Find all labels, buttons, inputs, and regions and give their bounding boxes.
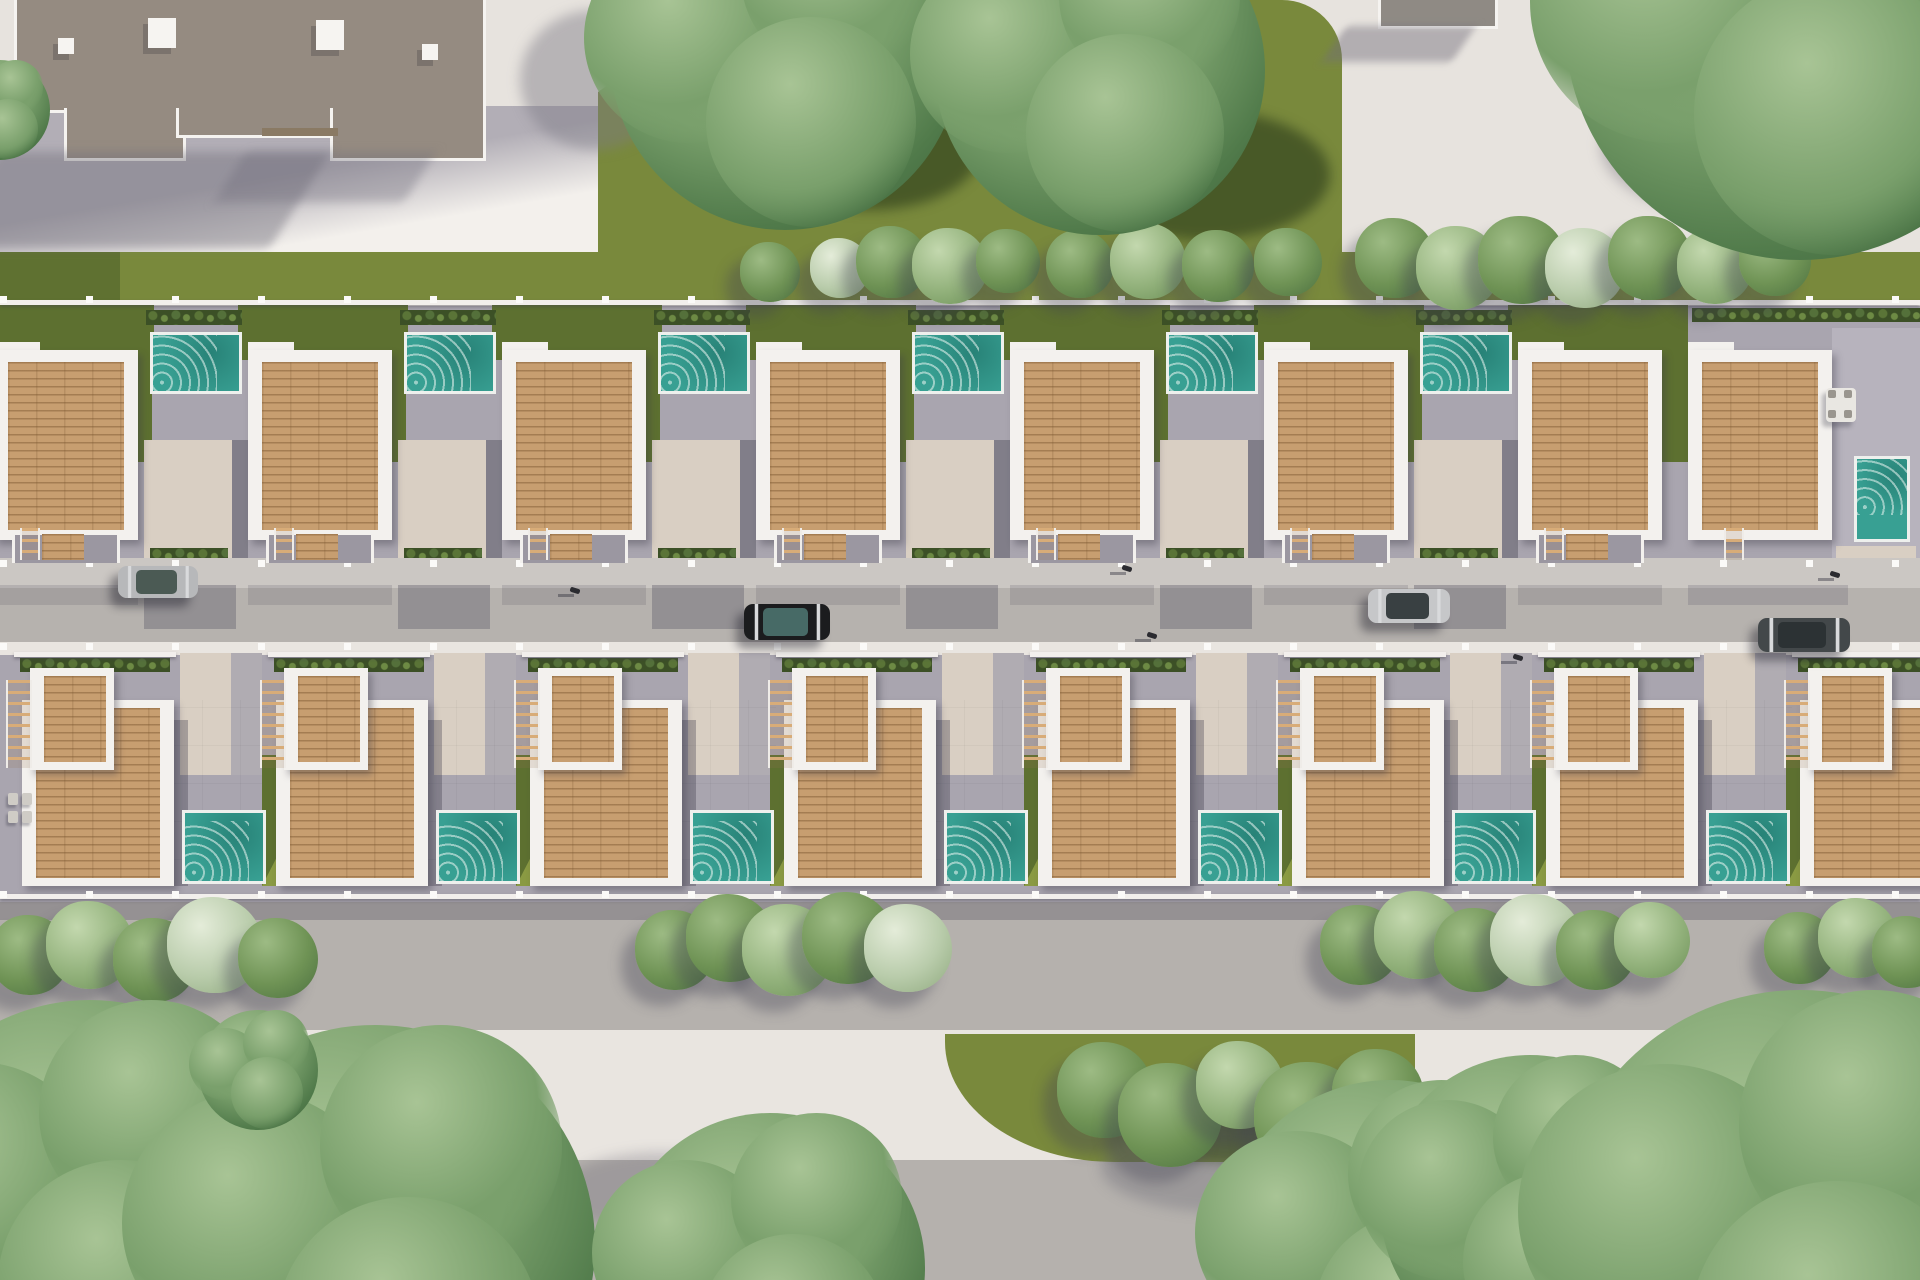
l-corner-chair bbox=[22, 793, 32, 805]
central-street bbox=[0, 558, 1920, 655]
l-lot-7-stairs bbox=[1784, 680, 1810, 768]
u-lot-2-stairs bbox=[528, 528, 548, 560]
l-lot-1-entry-deck-wood bbox=[298, 676, 360, 762]
building-cast-shadow-2 bbox=[214, 152, 435, 202]
bottom-tree-2 bbox=[198, 1010, 318, 1130]
u-lot-1-stairs bbox=[274, 528, 294, 560]
u-lot-0-deck-wood bbox=[8, 362, 124, 530]
small-building-shadow bbox=[1322, 26, 1476, 62]
tree-canopy-lobe bbox=[231, 1057, 303, 1129]
top-strip-bush-5 bbox=[1046, 230, 1114, 298]
l-lot-6-entry-deck bbox=[1554, 668, 1638, 770]
u-lot-5-hedge bbox=[1162, 310, 1258, 325]
pedestrian-2-shadow bbox=[1135, 639, 1151, 642]
tree-canopy-lobe bbox=[706, 17, 916, 227]
road-shadow-deck-6 bbox=[1518, 585, 1662, 605]
u-lot-4-walkway bbox=[906, 440, 994, 560]
l-lot-3-entry-deck-wood bbox=[806, 676, 868, 762]
u-lot-5-pool bbox=[1166, 332, 1258, 394]
u-lot-4-front-deck bbox=[1058, 534, 1100, 560]
u-lot-3-pool bbox=[658, 332, 750, 394]
tree-canopy-lobe bbox=[1694, 0, 1920, 255]
u-lot-3-walkway bbox=[652, 440, 740, 560]
l-corner-chair bbox=[8, 811, 18, 823]
u-lot-6-walkway bbox=[1414, 440, 1502, 560]
u-lot-0-front-deck bbox=[42, 534, 84, 560]
u-lot-1-walkway bbox=[144, 440, 232, 560]
u-lot-6-deck bbox=[1518, 350, 1662, 540]
u-end-table bbox=[1826, 388, 1856, 422]
l-lot-0-entry-deck-wood bbox=[44, 676, 106, 762]
road-shadow-walk-2 bbox=[398, 585, 490, 629]
l-lot-3-pool bbox=[944, 810, 1028, 884]
u-lot-5-deck-wood bbox=[1278, 362, 1394, 530]
pedestrian-3-shadow bbox=[1818, 578, 1834, 581]
l-lot-2-stairs bbox=[514, 680, 540, 768]
u-lot-3-walkway-shadow bbox=[740, 440, 756, 560]
u-lot-5-front-deck bbox=[1312, 534, 1354, 560]
l-lot-5-entry-deck bbox=[1300, 668, 1384, 770]
l-lot-0-pool bbox=[182, 810, 266, 884]
l-lot-7-front-wall bbox=[1792, 652, 1920, 657]
u-lot-2-pool bbox=[404, 332, 496, 394]
pedestrian-1-shadow bbox=[1110, 572, 1126, 575]
u-lot-3-hedge bbox=[654, 310, 750, 325]
silver-car-left bbox=[118, 566, 198, 598]
l-lot-7-entry-deck-wood bbox=[1822, 676, 1884, 762]
u-lot-6-hedge bbox=[1416, 310, 1512, 325]
l-lot-2-pool bbox=[690, 810, 774, 884]
u-end-chair bbox=[1828, 410, 1836, 418]
road-shadow-walk-3 bbox=[652, 585, 744, 629]
bottom-street-zone bbox=[0, 902, 1920, 1280]
u-end-chair bbox=[1828, 390, 1836, 398]
dark-suv-far-right bbox=[1758, 618, 1850, 652]
u-lot-4-pool bbox=[912, 332, 1004, 394]
l-lot-2-entry-deck-wood bbox=[552, 676, 614, 762]
l-lot-0-front-wall bbox=[14, 652, 176, 657]
u-lot-4-hedge bbox=[908, 310, 1004, 325]
top-strip-bush-0 bbox=[740, 242, 800, 302]
u-lot-0-deck bbox=[0, 350, 138, 540]
small-building-roof bbox=[1378, 0, 1498, 29]
black-car-center-windows bbox=[763, 608, 808, 636]
u-lot-6-pool bbox=[1420, 332, 1512, 394]
road-shadow-end bbox=[1688, 585, 1848, 605]
top-plaza-zone bbox=[0, 0, 1920, 302]
u-lot-5-deck bbox=[1264, 350, 1408, 540]
u-lot-2-walkway-shadow bbox=[486, 440, 502, 560]
black-car-center bbox=[744, 604, 830, 640]
pedestrian-0-shadow bbox=[558, 594, 574, 597]
dark-suv-far-right-windows bbox=[1778, 622, 1826, 648]
sidewalk-bush-4 bbox=[238, 918, 318, 998]
u-lot-1-deck bbox=[248, 350, 392, 540]
u-lot-1-front-deck bbox=[296, 534, 338, 560]
u-lot-5-walkway-shadow bbox=[1248, 440, 1264, 560]
u-lot-1-deck-wood bbox=[262, 362, 378, 530]
u-end-chair bbox=[1844, 390, 1852, 398]
u-lot-3-stairs bbox=[782, 528, 802, 560]
tree-canopy-lobe bbox=[1026, 34, 1224, 232]
u-lot-2-front-deck bbox=[550, 534, 592, 560]
rooftop-box-3 bbox=[422, 44, 438, 60]
upper-villa-row bbox=[0, 302, 1920, 558]
l-lot-6-entry-deck-wood bbox=[1568, 676, 1630, 762]
u-end-deck-wood bbox=[1702, 362, 1818, 530]
u-lot-3-front-deck bbox=[804, 534, 846, 560]
rooftop-box-0 bbox=[58, 38, 74, 54]
u-end-chair bbox=[1844, 410, 1852, 418]
l-lot-7-entry-deck bbox=[1808, 668, 1892, 770]
silver-car-right bbox=[1368, 589, 1450, 623]
silver-car-left-windows bbox=[136, 570, 178, 594]
l-lot-1-entry-deck bbox=[284, 668, 368, 770]
apartment-building-roof bbox=[14, 0, 486, 113]
u-end-side-pool bbox=[1854, 456, 1910, 542]
u-lot-0-stairs bbox=[20, 528, 40, 560]
grass-shade-left bbox=[0, 252, 120, 302]
sidewalk-bush-9 bbox=[864, 904, 952, 992]
lower-back-fence-posts bbox=[0, 891, 1920, 898]
u-lot-6-stairs bbox=[1544, 528, 1564, 560]
l-lot-5-pool bbox=[1452, 810, 1536, 884]
u-lot-3-deck-wood bbox=[770, 362, 886, 530]
u-lot-6-deck-wood bbox=[1532, 362, 1648, 530]
l-lot-4-stairs bbox=[1022, 680, 1048, 768]
l-lot-1-stairs bbox=[260, 680, 286, 768]
l-lot-1-front-wall bbox=[268, 652, 430, 657]
l-lot-5-entry-deck-wood bbox=[1314, 676, 1376, 762]
top-strip-bush-6 bbox=[1110, 223, 1186, 299]
rooftop-box-2 bbox=[316, 20, 344, 50]
l-lot-4-entry-deck-wood bbox=[1060, 676, 1122, 762]
u-lot-5-stairs bbox=[1290, 528, 1310, 560]
l-lot-0-stairs bbox=[6, 680, 32, 768]
silver-car-right-windows bbox=[1386, 593, 1429, 619]
sidewalk-bush-15 bbox=[1614, 902, 1690, 978]
u-lot-4-deck bbox=[1010, 350, 1154, 540]
rooftop-box-1 bbox=[148, 18, 176, 48]
pedestrian-4-shadow bbox=[1501, 661, 1517, 664]
u-lot-2-deck bbox=[502, 350, 646, 540]
l-lot-4-pool bbox=[1198, 810, 1282, 884]
u-lot-6-front-deck bbox=[1566, 534, 1608, 560]
l-lot-0-entry-deck bbox=[30, 668, 114, 770]
top-strip-bush-4 bbox=[976, 229, 1040, 293]
top-strip-bush-8 bbox=[1254, 228, 1322, 296]
l-lot-2-front-wall bbox=[522, 652, 684, 657]
l-lot-4-entry-deck bbox=[1046, 668, 1130, 770]
l-lot-6-stairs bbox=[1530, 680, 1556, 768]
l-corner-chair bbox=[8, 793, 18, 805]
l-lot-3-stairs bbox=[768, 680, 794, 768]
u-lot-4-deck-wood bbox=[1024, 362, 1140, 530]
aerial-development-render bbox=[0, 0, 1920, 1280]
u-lot-2-hedge bbox=[400, 310, 496, 325]
u-end-stairs bbox=[1724, 528, 1744, 560]
l-lot-5-front-wall bbox=[1284, 652, 1446, 657]
u-lot-1-pool bbox=[150, 332, 242, 394]
l-lot-2-entry-deck bbox=[538, 668, 622, 770]
l-corner-chair bbox=[22, 811, 32, 823]
u-lot-5-walkway bbox=[1160, 440, 1248, 560]
l-lot-6-pool bbox=[1706, 810, 1790, 884]
road-shadow-deck-3 bbox=[756, 585, 900, 605]
u-lot-1-hedge bbox=[146, 310, 242, 325]
l-lot-5-stairs bbox=[1276, 680, 1302, 768]
u-lot-3-deck bbox=[756, 350, 900, 540]
road-shadow-deck-1 bbox=[248, 585, 392, 605]
u-end-hedge bbox=[1692, 308, 1920, 322]
l-lot-4-front-wall bbox=[1030, 652, 1192, 657]
u-lot-2-walkway bbox=[398, 440, 486, 560]
l-lot-1-pool bbox=[436, 810, 520, 884]
u-lot-4-walkway-shadow bbox=[994, 440, 1010, 560]
road-shadow-deck-4 bbox=[1010, 585, 1154, 605]
l-lot-3-entry-deck bbox=[792, 668, 876, 770]
l-corner-furniture bbox=[8, 793, 34, 825]
l-lot-6-front-wall bbox=[1538, 652, 1700, 657]
road-shadow-walk-4 bbox=[906, 585, 998, 629]
u-lot-2-deck-wood bbox=[516, 362, 632, 530]
u-end-deck bbox=[1688, 350, 1832, 540]
lower-villa-row bbox=[0, 655, 1920, 902]
lower-sidewalk-posts bbox=[0, 643, 1920, 650]
u-lot-4-stairs bbox=[1036, 528, 1056, 560]
roof-balcony-strip bbox=[262, 128, 338, 136]
road-shadow-walk-5 bbox=[1160, 585, 1252, 629]
u-lot-1-walkway-shadow bbox=[232, 440, 248, 560]
u-lot-6-walkway-shadow bbox=[1502, 440, 1518, 560]
u-end-grass bbox=[1662, 302, 1688, 462]
top-strip-bush-7 bbox=[1182, 230, 1254, 302]
l-lot-3-front-wall bbox=[776, 652, 938, 657]
